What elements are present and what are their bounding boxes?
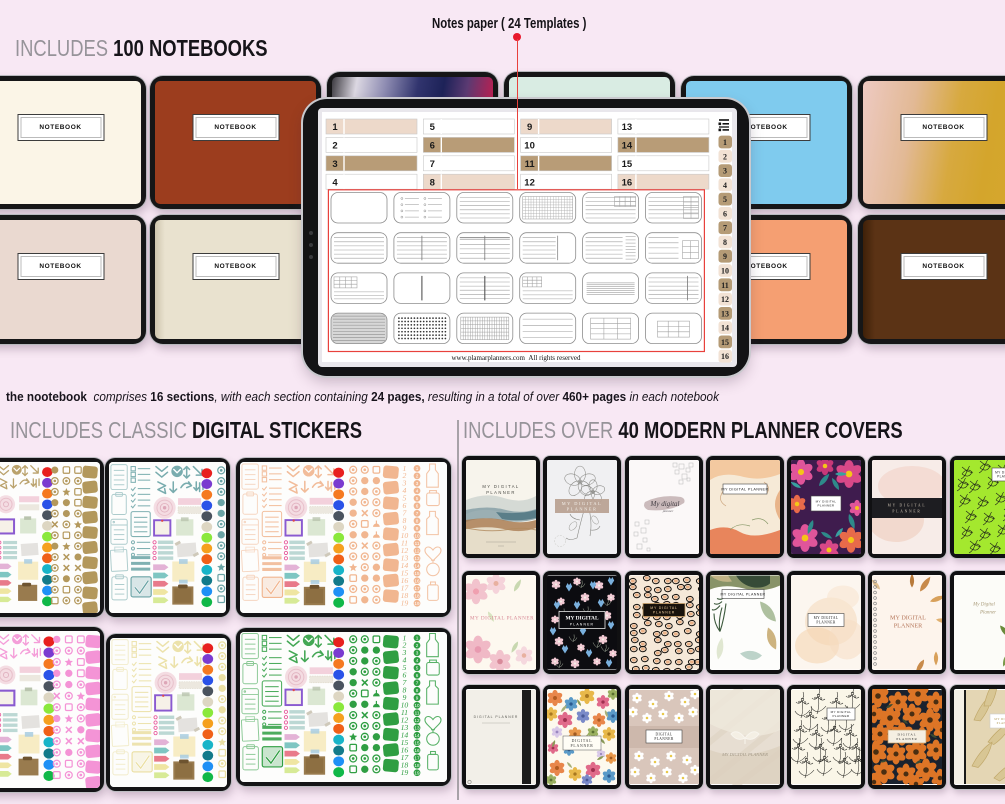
svg-text:3: 3 bbox=[332, 159, 337, 170]
svg-text:16: 16 bbox=[721, 352, 729, 361]
svg-text:5: 5 bbox=[430, 122, 436, 133]
svg-text:3: 3 bbox=[723, 167, 727, 176]
svg-text:MY DIGITAL PLANNER: MY DIGITAL PLANNER bbox=[721, 752, 768, 757]
svg-text:MY DIGITAL PLANNER: MY DIGITAL PLANNER bbox=[470, 616, 534, 622]
svg-text:6: 6 bbox=[723, 209, 727, 218]
svg-text:1: 1 bbox=[723, 138, 727, 147]
svg-text:PLANNER: PLANNER bbox=[894, 623, 923, 630]
svg-text:10: 10 bbox=[721, 267, 729, 276]
svg-text:PLANNER: PLANNER bbox=[892, 510, 921, 514]
svg-text:PLANNER: PLANNER bbox=[570, 623, 594, 627]
svg-text:11: 11 bbox=[721, 281, 729, 290]
svg-text:4: 4 bbox=[332, 177, 338, 188]
svg-text:MY DIGITALPLANNER: MY DIGITALPLANNER bbox=[814, 616, 839, 625]
svg-text:MY DIGITAL PLANNER: MY DIGITAL PLANNER bbox=[721, 487, 768, 491]
svg-text:PLANNER: PLANNER bbox=[896, 737, 917, 741]
svg-text:PLANNER: PLANNER bbox=[486, 490, 516, 495]
svg-text:planner: planner bbox=[662, 509, 674, 513]
svg-text:MY DIGITAL: MY DIGITAL bbox=[890, 615, 926, 622]
svg-text:16: 16 bbox=[622, 177, 633, 188]
svg-text:12: 12 bbox=[524, 177, 535, 188]
svg-text:14: 14 bbox=[622, 141, 633, 152]
svg-text:My digital: My digital bbox=[650, 500, 680, 508]
svg-text:14: 14 bbox=[721, 324, 729, 333]
svg-text:DIGITAL: DIGITAL bbox=[572, 739, 593, 743]
svg-text:9: 9 bbox=[723, 252, 727, 261]
svg-text:MY DIGITALPLANNER: MY DIGITALPLANNER bbox=[995, 471, 1005, 479]
svg-text:2: 2 bbox=[332, 141, 337, 152]
svg-text:13: 13 bbox=[622, 122, 633, 133]
svg-text:MY DIGITAL: MY DIGITAL bbox=[565, 616, 598, 622]
svg-text:5: 5 bbox=[723, 195, 727, 204]
svg-text:1: 1 bbox=[332, 122, 338, 133]
svg-text:MY DIGITAL: MY DIGITAL bbox=[650, 606, 678, 610]
svg-text:MY DIGITAL PLANNER: MY DIGITAL PLANNER bbox=[720, 592, 765, 596]
svg-text:6: 6 bbox=[430, 141, 435, 152]
svg-text:DIGITALPLANNER: DIGITALPLANNER bbox=[654, 732, 674, 741]
svg-text:7: 7 bbox=[723, 224, 727, 233]
svg-text:MY DIGITALPLANNER: MY DIGITALPLANNER bbox=[994, 717, 1005, 725]
svg-text:11: 11 bbox=[525, 159, 536, 170]
svg-text:9: 9 bbox=[527, 122, 532, 133]
svg-text:8: 8 bbox=[723, 238, 727, 247]
svg-text:PLANNER: PLANNER bbox=[567, 507, 598, 512]
svg-text:MY DIGITALPLANNER: MY DIGITALPLANNER bbox=[816, 500, 837, 508]
svg-text:PLANNER: PLANNER bbox=[653, 611, 675, 615]
svg-text:15: 15 bbox=[721, 338, 729, 347]
svg-text:4: 4 bbox=[723, 181, 727, 190]
svg-text:MY DIGITAL: MY DIGITAL bbox=[562, 501, 602, 506]
svg-text:MY DIGITALPLANNER: MY DIGITALPLANNER bbox=[831, 710, 852, 718]
svg-text:2: 2 bbox=[723, 152, 727, 161]
svg-text:My Digital: My Digital bbox=[972, 603, 995, 608]
svg-text:DIGITAL: DIGITAL bbox=[897, 733, 916, 737]
svg-text:13: 13 bbox=[721, 309, 729, 318]
svg-text:MY DIGITAL: MY DIGITAL bbox=[482, 484, 519, 489]
svg-text:www.plamarplanners.com All ri: www.plamarplanners.com All rights reserv… bbox=[451, 354, 581, 362]
svg-text:12: 12 bbox=[721, 295, 729, 304]
svg-text:15: 15 bbox=[622, 159, 633, 170]
svg-text:7: 7 bbox=[430, 159, 435, 170]
svg-text:Planner: Planner bbox=[979, 611, 996, 616]
svg-text:PLANNER: PLANNER bbox=[570, 744, 593, 748]
svg-text:10: 10 bbox=[524, 141, 535, 152]
svg-text:DIGITAL PLANNER: DIGITAL PLANNER bbox=[474, 715, 519, 719]
svg-text:MY DIGITAL: MY DIGITAL bbox=[888, 504, 927, 508]
svg-text:8: 8 bbox=[430, 177, 435, 188]
